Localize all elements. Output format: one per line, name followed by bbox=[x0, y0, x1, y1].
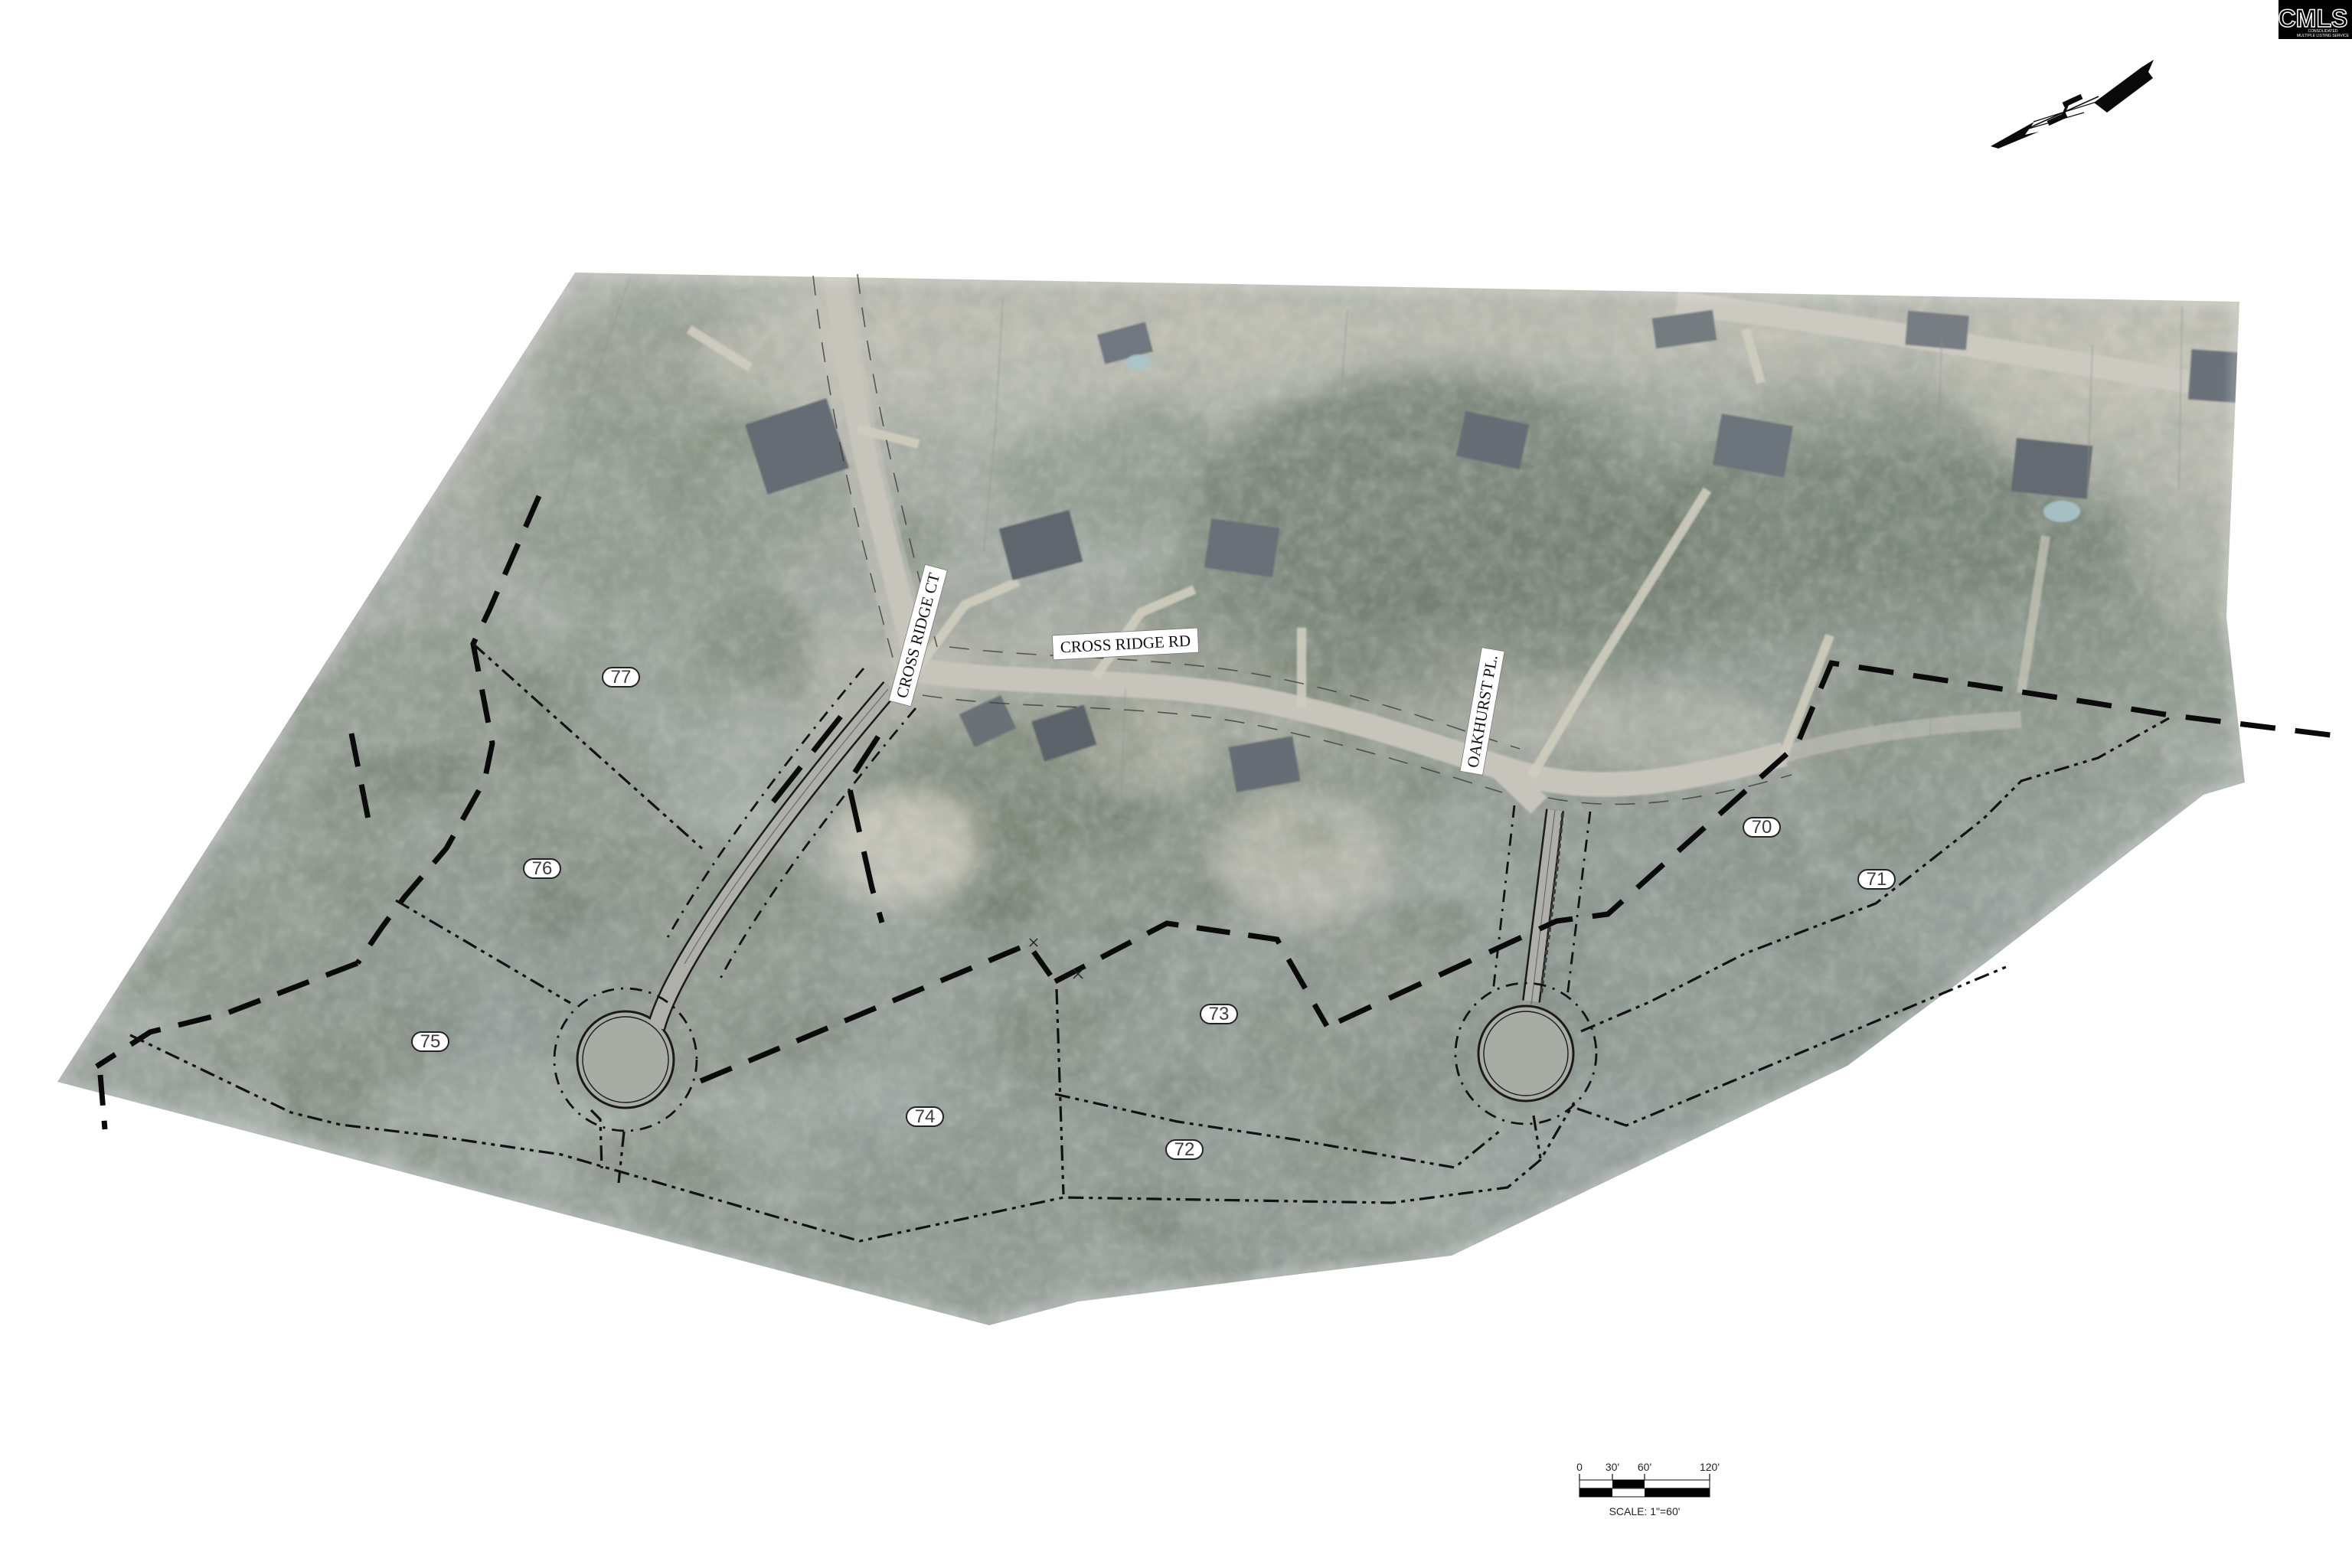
svg-text:74: 74 bbox=[915, 1106, 936, 1127]
svg-text:SCALE: 1"=60': SCALE: 1"=60' bbox=[1609, 1505, 1681, 1517]
svg-text:CMLS: CMLS bbox=[2278, 5, 2348, 32]
svg-text:60': 60' bbox=[1638, 1461, 1651, 1473]
svg-text:MULTIPLE LISTING SERVICE: MULTIPLE LISTING SERVICE bbox=[2297, 34, 2350, 38]
svg-text:30': 30' bbox=[1606, 1461, 1619, 1473]
svg-text:0: 0 bbox=[1576, 1461, 1583, 1473]
svg-text:120': 120' bbox=[1700, 1461, 1720, 1473]
svg-text:70: 70 bbox=[1752, 817, 1772, 838]
svg-text:72: 72 bbox=[1174, 1139, 1195, 1160]
svg-text:73: 73 bbox=[1209, 1004, 1230, 1024]
svg-text:71: 71 bbox=[1867, 869, 1887, 890]
svg-text:76: 76 bbox=[532, 858, 553, 879]
svg-text:77: 77 bbox=[611, 667, 632, 688]
svg-text:75: 75 bbox=[420, 1031, 441, 1052]
